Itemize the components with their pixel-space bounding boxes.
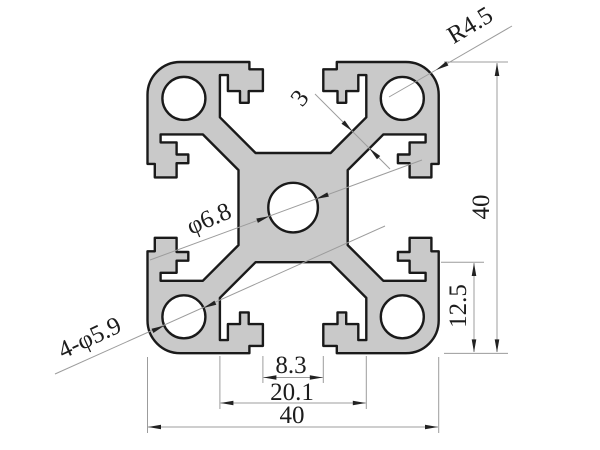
extrusion-section-drawing: R4.5 40 12.5 8.3 20.1 40 3 φ6.8 4-φ5.9 [0,0,600,450]
technical-drawing-page: R4.5 40 12.5 8.3 20.1 40 3 φ6.8 4-φ5.9 [0,0,600,450]
dim-label-center-hole: φ6.8 [183,198,236,241]
dim-label-corner-holes: 4-φ5.9 [54,312,126,365]
dim-label-slot-opening: 8.3 [275,352,306,379]
dim-label-slot-depth: 12.5 [445,284,472,328]
dim-label-web-thickness: 3 [286,85,315,111]
dim-label-corner-radius: R4.5 [443,2,498,50]
dim-label-width: 40 [280,402,305,429]
dim-label-height: 40 [468,195,495,220]
